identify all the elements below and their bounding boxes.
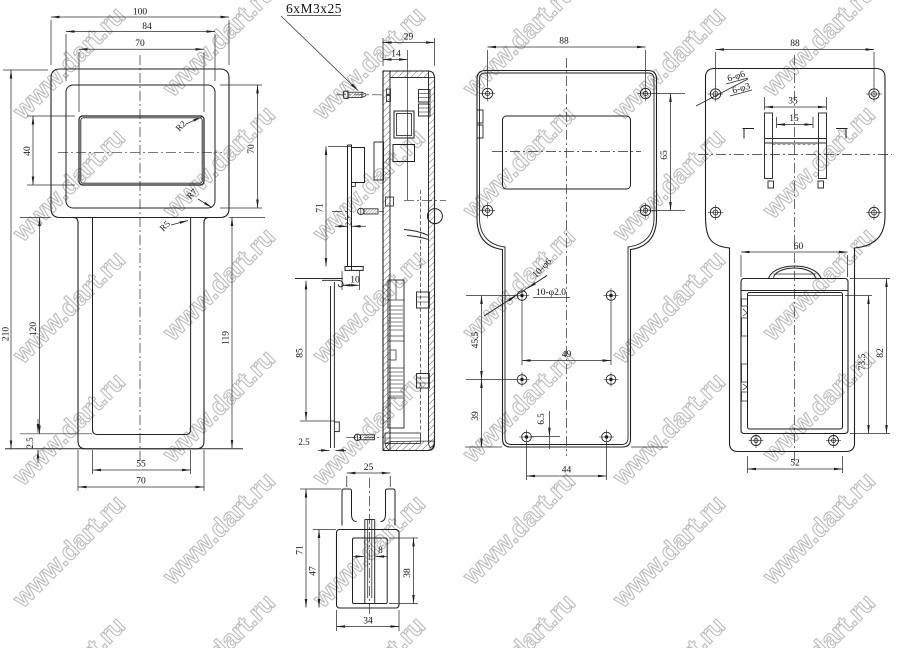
- svg-text:71: 71: [296, 545, 306, 555]
- svg-text:2.5: 2.5: [25, 437, 35, 449]
- svg-text:29: 29: [404, 33, 414, 43]
- svg-text:70: 70: [135, 39, 145, 49]
- svg-text:47: 47: [309, 566, 319, 576]
- svg-text:25: 25: [364, 463, 374, 473]
- svg-text:65: 65: [660, 150, 670, 160]
- svg-text:88: 88: [559, 37, 569, 47]
- svg-text:70: 70: [136, 477, 146, 487]
- svg-text:82: 82: [876, 348, 886, 358]
- svg-text:2.5: 2.5: [344, 216, 353, 226]
- svg-text:34: 34: [363, 616, 373, 626]
- svg-text:35: 35: [788, 97, 798, 107]
- svg-text:85: 85: [296, 348, 306, 358]
- svg-text:100: 100: [133, 8, 148, 18]
- svg-text:210: 210: [2, 327, 12, 342]
- svg-text:2.5: 2.5: [298, 437, 310, 447]
- svg-text:6xM3x25: 6xM3x25: [286, 1, 342, 16]
- svg-text:73.5: 73.5: [858, 353, 868, 370]
- svg-text:40: 40: [23, 146, 33, 156]
- svg-text:38: 38: [403, 568, 413, 578]
- svg-text:119: 119: [222, 331, 232, 345]
- svg-text:10: 10: [350, 275, 360, 285]
- svg-text:88: 88: [790, 39, 800, 49]
- svg-text:6.5: 6.5: [536, 413, 546, 425]
- svg-text:39: 39: [471, 411, 481, 421]
- svg-text:49: 49: [562, 350, 572, 360]
- svg-text:70: 70: [247, 144, 257, 154]
- svg-text:52: 52: [790, 459, 800, 469]
- svg-text:60: 60: [794, 242, 804, 252]
- svg-text:84: 84: [142, 22, 152, 32]
- svg-text:71: 71: [316, 203, 326, 213]
- svg-text:120: 120: [29, 322, 39, 337]
- svg-text:55: 55: [136, 460, 146, 470]
- svg-text:10-φ2.0: 10-φ2.0: [536, 288, 566, 298]
- svg-text:44: 44: [562, 466, 572, 476]
- svg-text:45.5: 45.5: [471, 331, 481, 348]
- svg-text:15: 15: [789, 114, 799, 124]
- svg-text:8: 8: [378, 545, 383, 555]
- svg-text:14: 14: [391, 50, 401, 60]
